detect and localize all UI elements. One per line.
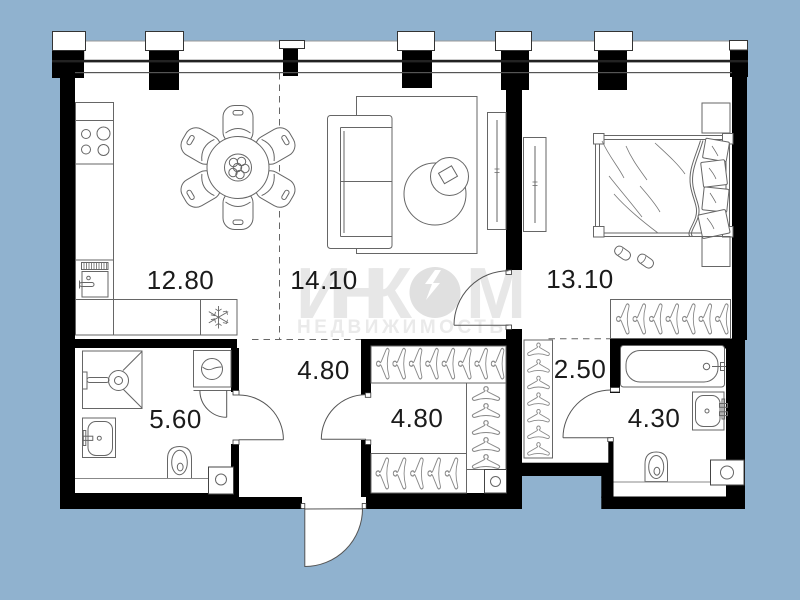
svg-text:4.80: 4.80	[297, 355, 350, 385]
svg-text:14.10: 14.10	[290, 265, 358, 295]
svg-text:4.80: 4.80	[391, 403, 444, 433]
svg-text:4.30: 4.30	[628, 403, 681, 433]
svg-text:5.60: 5.60	[149, 404, 202, 434]
svg-text:2.50: 2.50	[554, 354, 607, 384]
svg-text:12.80: 12.80	[147, 265, 215, 295]
svg-text:13.10: 13.10	[546, 264, 614, 294]
